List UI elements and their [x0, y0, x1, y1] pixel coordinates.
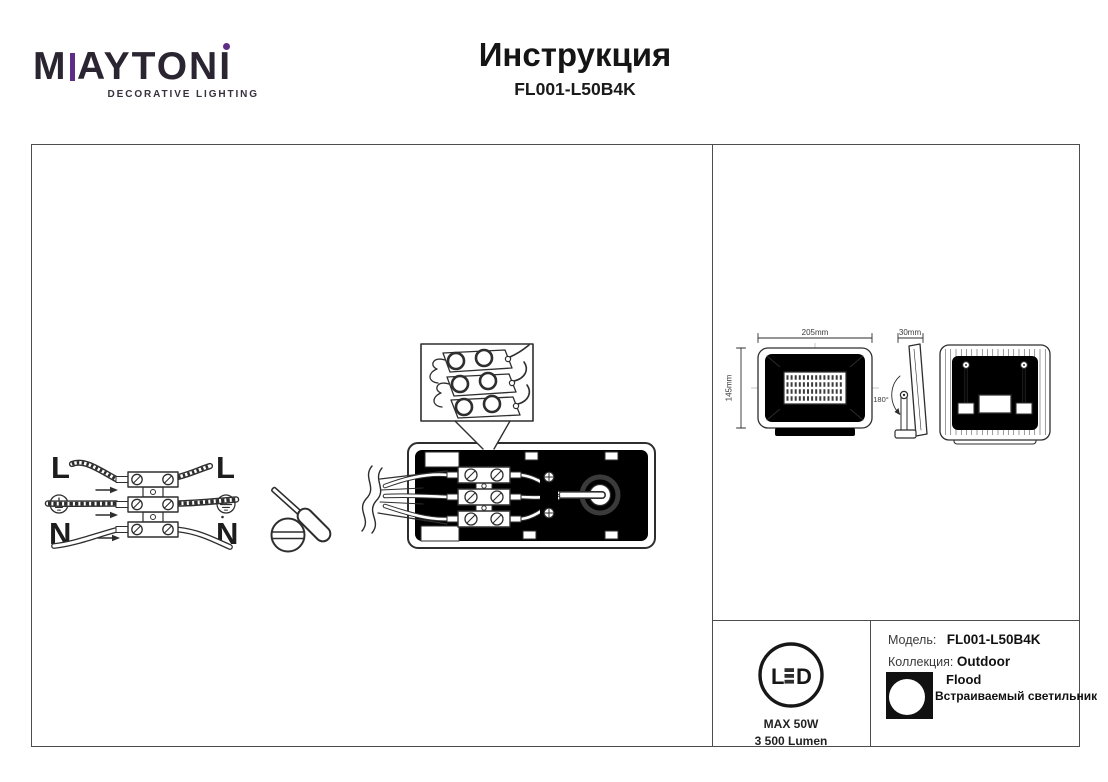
brand-i-dot-icon [223, 43, 230, 50]
floodlight-icon [886, 672, 933, 719]
brand-rest: AYTONI [77, 46, 232, 89]
collection-label: Коллекция: [888, 655, 953, 669]
led-letter-l: L [771, 664, 784, 689]
label-line-left: L [51, 450, 70, 485]
depth-label: 30mm [899, 328, 922, 337]
page-model-number: FL001-L50B4K [400, 79, 750, 100]
height-dimension: 145mm [725, 348, 746, 428]
neutral-accent-dot [221, 516, 224, 519]
wiring-diagram: L N L N [40, 445, 275, 555]
floodlight-lens-icon [889, 679, 925, 715]
cable-clamp [540, 465, 558, 525]
model-row: Модель: FL001-L50B4K [888, 632, 1041, 647]
product-type-line1: Flood [946, 672, 981, 687]
collection-row: Коллекция: Outdoor [888, 654, 1010, 669]
luminous-flux: 3 500 Lumen [712, 734, 870, 748]
back-view [940, 345, 1050, 444]
tilt-label: 180° [873, 395, 889, 404]
internal-terminal-block [447, 467, 521, 527]
front-view [751, 343, 879, 436]
model-value: FL001-L50B4K [947, 632, 1041, 647]
led-circle-icon: L D [756, 640, 826, 710]
junction-box-diagram [355, 338, 665, 553]
model-label: Модель: [888, 633, 936, 647]
page-title: Инструкция [400, 36, 750, 74]
brand-wordmark: M AYTONI [33, 46, 232, 89]
screwdriver-icon [262, 483, 352, 555]
led-e-bars-icon [785, 668, 795, 683]
label-line-right: L [216, 450, 235, 485]
brand-logo: M AYTONI DECORATIVE LIGHTING [33, 46, 259, 100]
terminal-detail-inset [421, 344, 533, 421]
width-label: 205mm [802, 328, 829, 337]
led-letter-d: D [796, 664, 812, 689]
side-view [892, 344, 927, 438]
instruction-sheet: { "header": { "brand_m": "M", "brand_res… [0, 0, 1108, 782]
width-dimension: 205mm [758, 328, 872, 343]
max-power: MAX 50W [712, 717, 870, 731]
dimension-drawings: 205mm 145mm 30mm 180° [715, 318, 1077, 448]
depth-dimension: 30mm [898, 328, 923, 343]
brand-purple-bar-icon [70, 53, 76, 81]
height-label: 145mm [725, 374, 734, 401]
document-header: Инструкция FL001-L50B4K [400, 36, 750, 100]
spec-cell-divider [870, 621, 871, 746]
collection-value: Outdoor [957, 654, 1010, 669]
brand-tagline: DECORATIVE LIGHTING [33, 89, 259, 100]
product-type-line2: Встраиваемый светильник [935, 689, 1097, 703]
terminal-strip [116, 472, 178, 537]
brand-letter-m: M [33, 46, 68, 89]
led-spec-cell: L D MAX 50W 3 500 Lumen [712, 620, 870, 746]
